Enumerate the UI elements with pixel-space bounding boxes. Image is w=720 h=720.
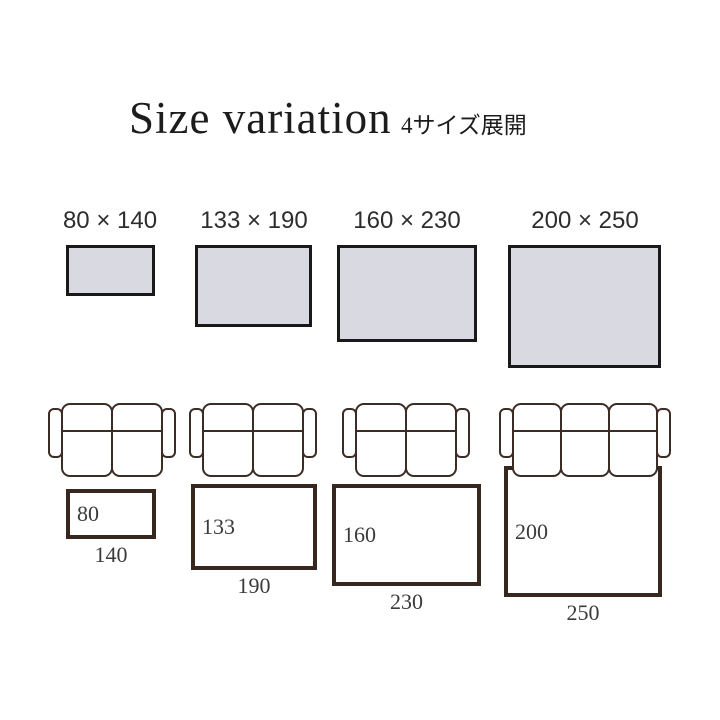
sofa-cushion	[608, 403, 658, 477]
size-swatch-160x230	[337, 245, 477, 342]
sofa-seat-divider	[202, 430, 304, 432]
sofa-seat-divider	[355, 430, 457, 432]
sofa-body	[355, 403, 457, 477]
size-label-200x250: 200 × 250	[505, 206, 665, 236]
sofa-cushion	[355, 403, 407, 477]
sofa-cushion	[405, 403, 457, 477]
rug-outline-160x230: 160	[332, 484, 481, 586]
sofa-armrest-right-icon	[302, 408, 317, 458]
size-variation-page: Size variation 4サイズ展開 80 × 140 133 × 190…	[0, 0, 720, 720]
page-title: Size variation	[129, 92, 392, 144]
sofa-armrest-right-icon	[161, 408, 176, 458]
sofa-body	[61, 403, 163, 477]
size-label-80x140: 80 × 140	[30, 206, 190, 236]
sofa-body	[202, 403, 304, 477]
rug-width-label: 190	[191, 573, 317, 599]
rug-outline-200x250: 200	[504, 466, 662, 597]
sofa-icon	[48, 403, 176, 477]
rug-width-label: 230	[332, 589, 481, 615]
sofa-body	[512, 403, 658, 477]
sofa-armrest-right-icon	[656, 408, 671, 458]
size-label-133x190: 133 × 190	[174, 206, 334, 236]
rug-width-label: 250	[504, 600, 662, 626]
rug-height-label: 133	[202, 514, 235, 540]
sofa-cushion	[61, 403, 113, 477]
page-subtitle: 4サイズ展開	[401, 106, 527, 140]
sofa-seat-divider	[61, 430, 163, 432]
sofa-icon	[189, 403, 317, 477]
size-swatch-200x250	[508, 245, 661, 368]
rug-height-label: 80	[77, 501, 99, 527]
sofa-icon	[499, 403, 671, 477]
rug-height-label: 160	[343, 522, 376, 548]
sofa-seat-divider	[512, 430, 658, 432]
sofa-cushion	[560, 403, 610, 477]
rug-width-label: 140	[66, 542, 156, 568]
rug-height-label: 200	[515, 519, 548, 545]
sofa-cushion	[512, 403, 562, 477]
rug-outline-133x190: 133	[191, 484, 317, 570]
sofa-cushion	[252, 403, 304, 477]
size-label-160x230: 160 × 230	[327, 206, 487, 236]
sofa-icon	[342, 403, 470, 477]
sofa-cushion	[202, 403, 254, 477]
sofa-cushion	[111, 403, 163, 477]
rug-outline-80x140: 80	[66, 489, 156, 539]
sofa-armrest-right-icon	[455, 408, 470, 458]
size-swatch-133x190	[195, 245, 312, 327]
size-swatch-80x140	[66, 245, 155, 296]
